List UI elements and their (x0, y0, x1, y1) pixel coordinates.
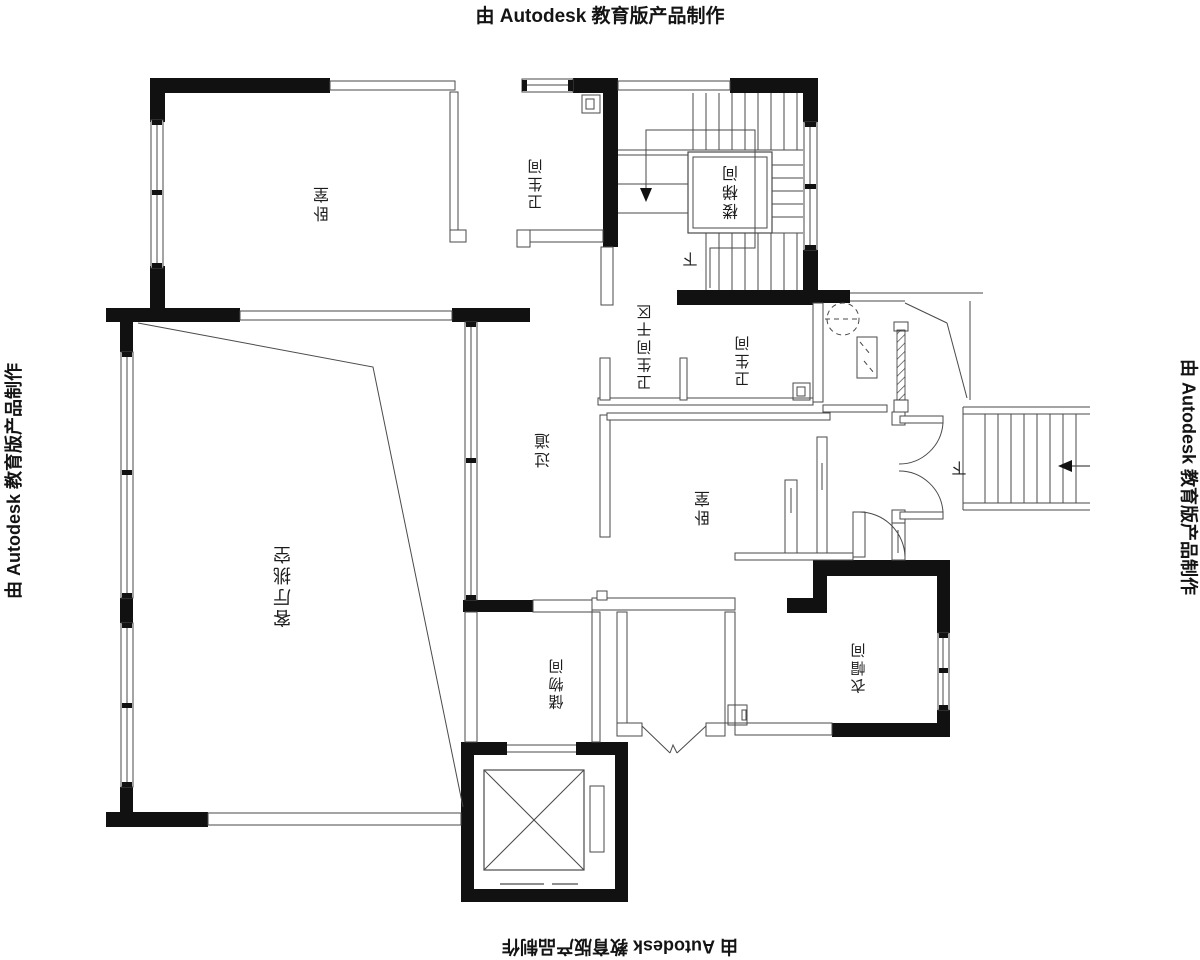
entry-stairs (963, 407, 1090, 510)
down-label-entry: 下 (951, 459, 966, 476)
room-label-cloakroom: 衣帽间 (850, 641, 865, 693)
stair-treads-bottom (688, 233, 803, 290)
entry-door-swing-top (899, 423, 943, 464)
down-label-stairwell: 下 (682, 250, 697, 267)
watermark-top: 由 Autodesk 教育版产品制作 (475, 4, 724, 27)
room-label-bedroom-mid: 卧室 (694, 489, 710, 526)
stair-treads-landing (618, 155, 688, 213)
stair-down-arrow (640, 188, 652, 202)
room-label-bedroom-top: 卧室 (313, 185, 329, 222)
room-label-storage: 储物间 (548, 657, 563, 709)
floor-plan-canvas: 由 Autodesk 教育版产品制作 由 Autodesk 教育版产品制作 由 … (0, 0, 1200, 960)
entry-door-leaf-top (900, 416, 943, 423)
entry-door-leaf-bottom (900, 512, 943, 519)
room-label-living-void: 客厅挑空 (273, 544, 291, 628)
entry-door-swing-bottom (899, 471, 943, 512)
stair-treads-right (772, 165, 803, 217)
hatched-wall-segment (897, 330, 905, 400)
wall-fixture-bath-mid (793, 383, 810, 400)
watermark-left: 由 Autodesk 教育版产品制作 (3, 363, 24, 599)
watermark-bottom: 由 Autodesk 教育版产品制作 (502, 936, 738, 957)
hall-door-leaf (853, 512, 865, 557)
vanity-fixture (857, 337, 877, 378)
room-label-corridor: 过道 (534, 431, 550, 468)
elevator-counterweight (590, 786, 604, 852)
floor-plan-page: 由 Autodesk 教育版产品制作 由 Autodesk 教育版产品制作 由 … (0, 0, 1200, 960)
room-label-bath-top: 卫生间 (527, 157, 542, 209)
entry-stair-treads (985, 414, 1076, 503)
wall-fixture-bath-top (582, 95, 600, 113)
room-label-bath-mid: 卫生间 (734, 334, 749, 386)
vestibule-double-door (642, 726, 706, 753)
elevator (484, 770, 604, 884)
entry-stair-arrow (1058, 460, 1072, 472)
room-label-bath-dry: 卫生间干区 (636, 302, 651, 390)
void-diagonal (138, 323, 463, 807)
room-label-stairwell: 楼梯间 (722, 164, 738, 220)
watermark-right: 由 Autodesk 教育版产品制作 (1178, 359, 1199, 595)
stairwell-stairs (618, 93, 803, 290)
